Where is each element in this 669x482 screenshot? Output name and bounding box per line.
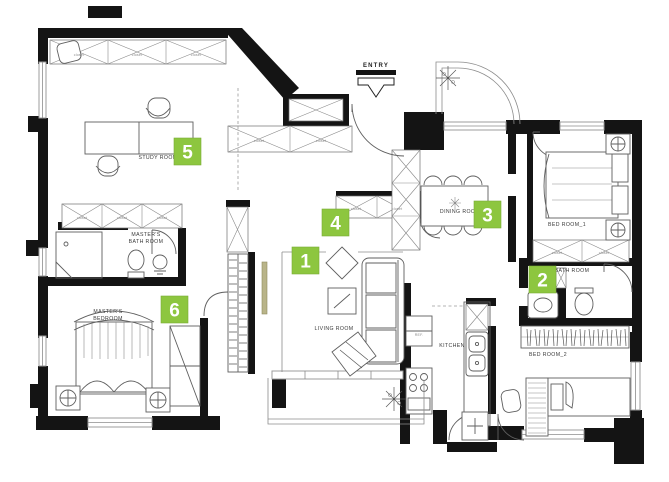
entry-door-swing	[352, 104, 404, 156]
marker-3[interactable]: 3	[474, 201, 501, 228]
dining-chairs-top	[424, 176, 482, 185]
masters-bath-label-2: BATH ROOM	[129, 239, 164, 245]
plant-icon	[436, 66, 460, 90]
tv-accent-strip	[262, 262, 267, 314]
closet-label: closet	[117, 216, 128, 220]
sink-icon	[153, 255, 167, 269]
vanity	[528, 292, 558, 318]
marker-2[interactable]: 2	[529, 266, 556, 293]
master-bed	[76, 322, 152, 394]
study-label: STUDY ROOM	[138, 155, 177, 161]
pillow	[612, 154, 628, 182]
bed-1	[546, 152, 618, 218]
floor-plan-canvas: ENTRY STUDY ROOM MASTER'S BATH ROOM MAST…	[0, 0, 669, 482]
entry-label: ENTRY	[363, 63, 389, 69]
svg-text:2: 2	[537, 271, 548, 292]
closet-label: closet	[191, 53, 202, 57]
toilet-icon	[128, 250, 144, 270]
closet-label: closet	[77, 216, 88, 220]
svg-text:4: 4	[330, 214, 341, 235]
closet-label: closet	[599, 251, 610, 255]
marker-4[interactable]: 4	[322, 209, 349, 236]
closet-label: closet	[157, 216, 168, 220]
bath-shower-door-swing	[604, 264, 632, 292]
entry-arrow-icon	[358, 78, 394, 97]
toilet-icon	[575, 293, 593, 315]
closet-label: closet	[254, 139, 265, 143]
marker-5[interactable]: 5	[174, 138, 201, 165]
svg-text:5: 5	[182, 143, 193, 164]
closet-label: closet	[74, 53, 85, 57]
desk-shelf	[526, 378, 548, 436]
bedroom1-label: BED ROOM_1	[548, 222, 586, 228]
shower-stall	[56, 232, 102, 278]
monitor	[551, 384, 563, 410]
closet-label: closet	[552, 251, 563, 255]
drain-icon	[64, 242, 68, 246]
ref-label: REF.	[415, 333, 424, 337]
toilet-tank	[575, 288, 593, 293]
dining-chairs-bottom	[424, 226, 482, 235]
marker-6[interactable]: 6	[161, 296, 188, 323]
masters-bath-label-1: MASTER'S	[131, 232, 160, 238]
masters-bed-label-2: BEDROOM	[93, 316, 123, 322]
hanging-closet	[521, 326, 629, 348]
masters-bedroom	[56, 311, 200, 412]
bath-label: BATH ROOM	[555, 268, 590, 274]
entry: ENTRY	[356, 63, 396, 97]
closet-label: closet	[316, 139, 327, 143]
floor-plan: ENTRY STUDY ROOM MASTER'S BATH ROOM MAST…	[0, 0, 669, 482]
pillow	[612, 186, 628, 214]
desk-chair	[500, 389, 522, 414]
closet-label: closet	[351, 207, 362, 211]
svg-text:6: 6	[169, 301, 180, 322]
study-chair-top	[148, 98, 170, 118]
svg-text:3: 3	[482, 206, 493, 227]
masters-bed-door-swing	[204, 292, 228, 316]
closet-label: closet	[392, 207, 403, 211]
svg-text:1: 1	[300, 252, 311, 273]
living-room	[262, 247, 404, 376]
corridor-bookshelf	[228, 254, 248, 372]
bedroom2-label: BED ROOM_2	[529, 352, 567, 358]
kitchen-label: KITCHEN	[439, 343, 465, 349]
masters-bed-label-1: MASTER'S	[93, 309, 122, 315]
living-label: LIVING ROOM	[315, 326, 354, 332]
room-markers: 1 2 3 4 5 6	[161, 138, 556, 323]
ceiling-diamond-decor	[326, 247, 358, 279]
marker-1[interactable]: 1	[292, 247, 319, 274]
balcony-top-right	[436, 62, 520, 124]
closet-label: closet	[132, 53, 143, 57]
